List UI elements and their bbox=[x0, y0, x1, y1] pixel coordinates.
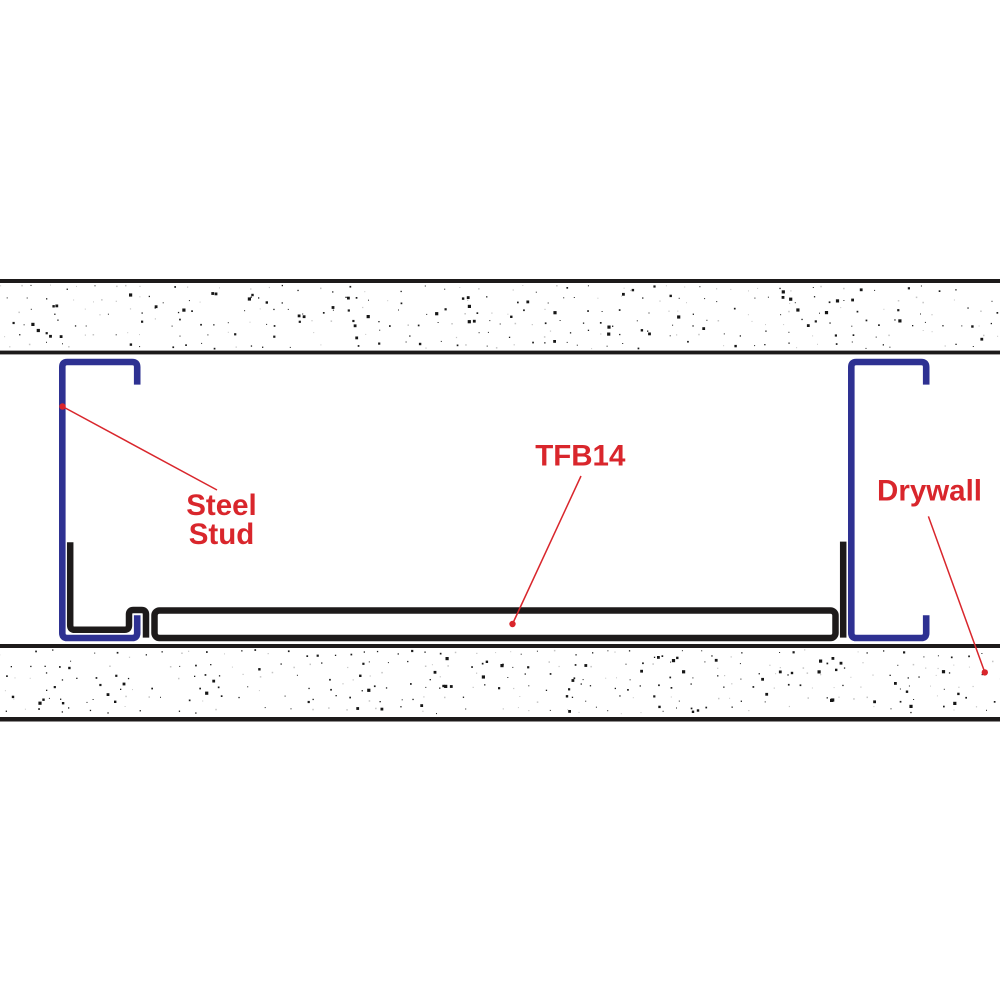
svg-text:Drywall: Drywall bbox=[877, 474, 982, 507]
svg-text:Stud: Stud bbox=[189, 518, 255, 551]
svg-text:TFB14: TFB14 bbox=[535, 439, 626, 472]
